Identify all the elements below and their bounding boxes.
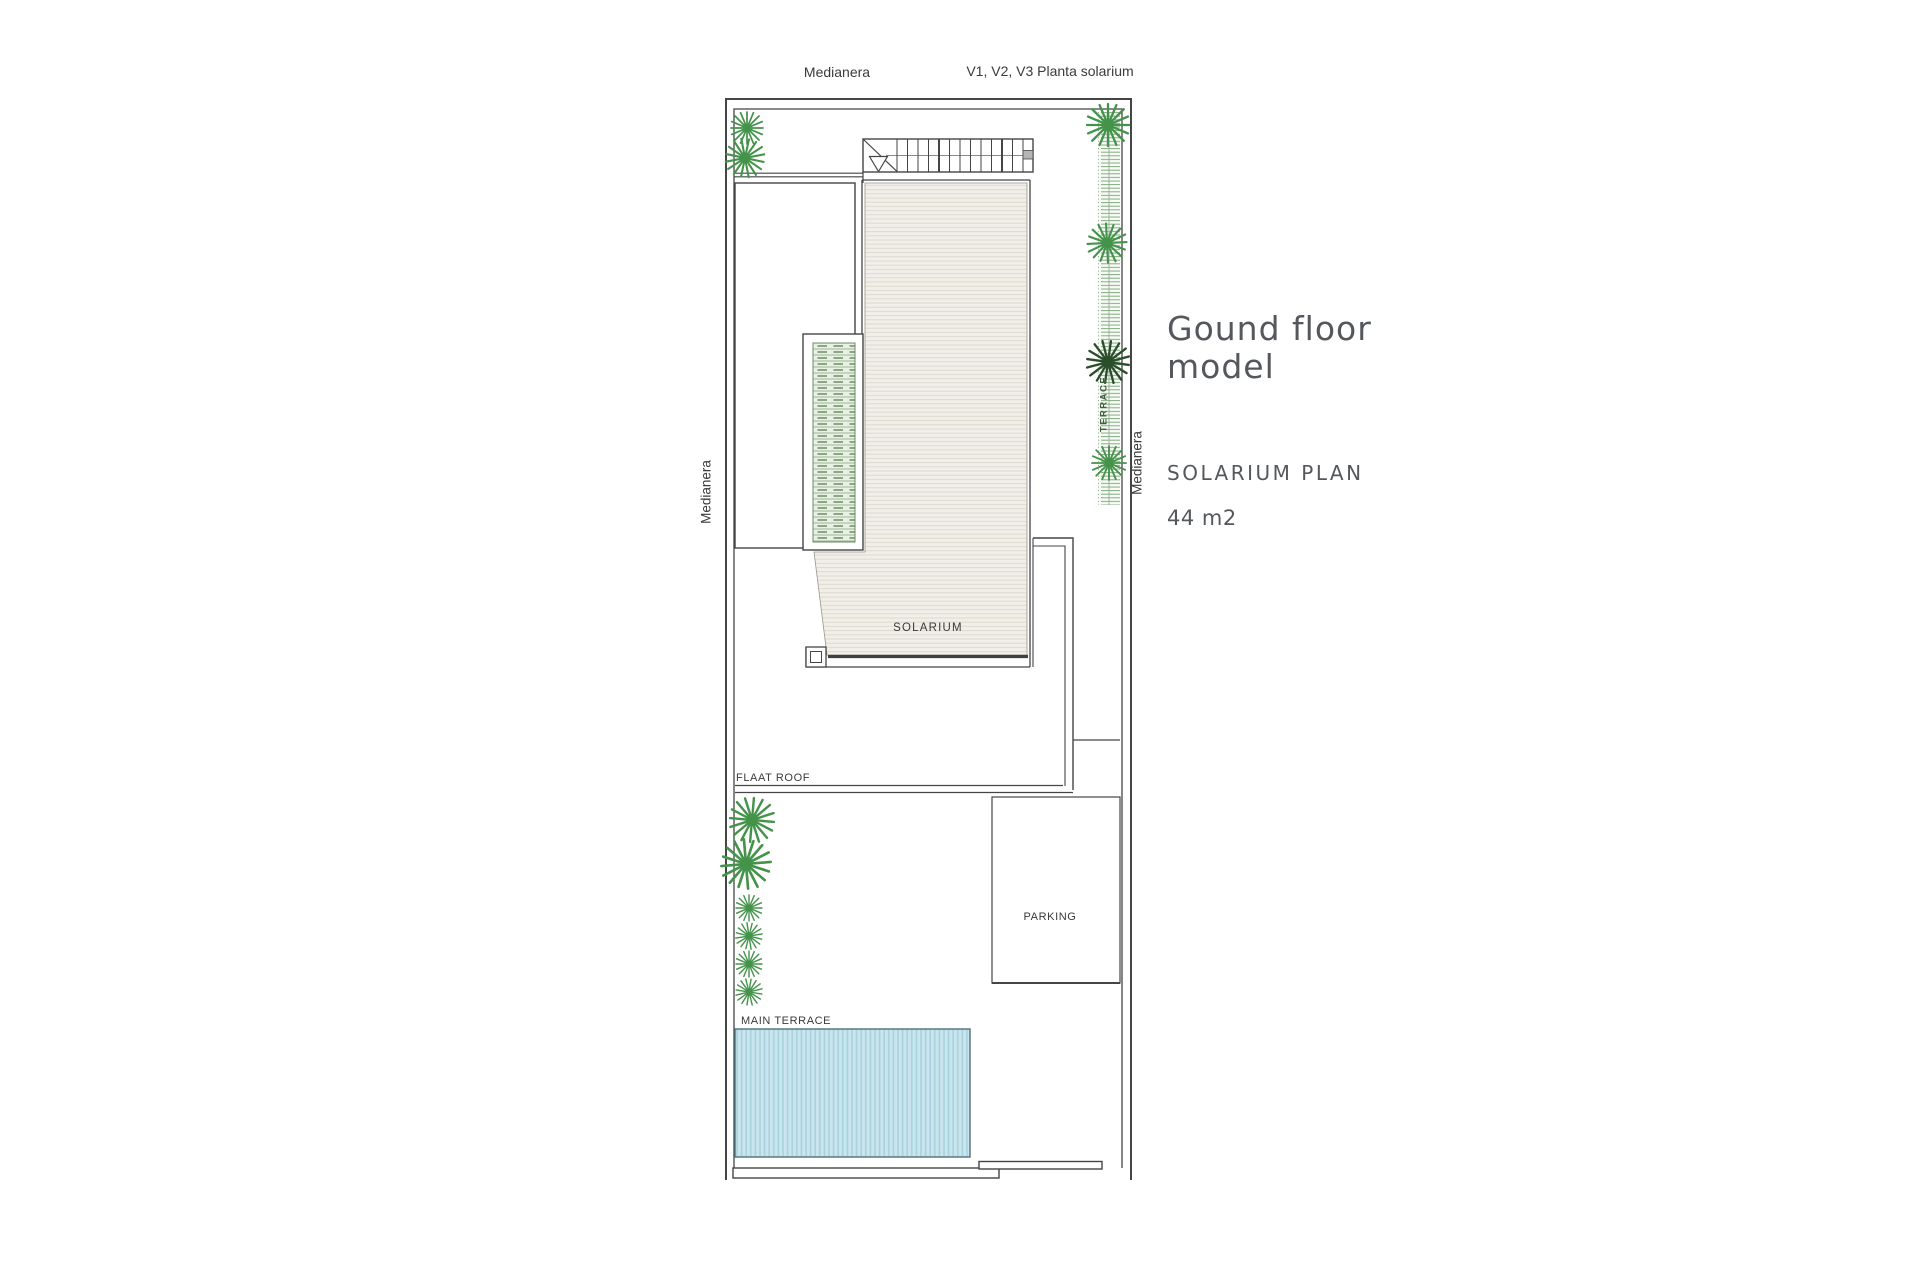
parking-outline: [992, 797, 1120, 983]
side-corridor-outline: [1033, 538, 1120, 790]
plan-name: SOLARIUM PLAN: [1167, 461, 1364, 485]
floor-plan-drawing: [0, 0, 1920, 1280]
plant-icon: [1087, 104, 1129, 146]
parking-label: PARKING: [1024, 911, 1077, 923]
plant-icon: [728, 796, 776, 844]
solarium-label: SOLARIUM: [893, 622, 963, 634]
terrace-label: TERRACE: [1099, 376, 1110, 432]
boundary-label-left: Medianera: [699, 460, 714, 524]
bottom-boundary: [733, 1162, 1102, 1179]
drawing-note: V1, V2, V3 Planta solarium: [966, 63, 1133, 79]
planter-strip: [803, 334, 863, 550]
plant-icon: [736, 895, 762, 921]
flat-roof-label: FLAAT ROOF: [736, 772, 810, 784]
column-post-inner: [811, 652, 822, 663]
stair-landing-mark: [1023, 151, 1033, 160]
floor-plan-page: Medianera V1, V2, V3 Planta solarium Med…: [0, 0, 1920, 1280]
plant-icon: [734, 977, 764, 1007]
top-corridor-edge: [734, 173, 863, 177]
stairs: [863, 139, 1033, 183]
main-terrace-label: MAIN TERRACE: [741, 1015, 831, 1027]
flat-roof-bottom-edge: [735, 786, 1073, 793]
pool: [735, 1029, 970, 1157]
plan-area-value: 44 m2: [1167, 506, 1237, 530]
plant-icon: [1092, 446, 1126, 480]
plant-icon: [716, 834, 776, 894]
page-title: Gound floor model: [1167, 310, 1377, 386]
plant-icon: [731, 112, 763, 144]
plant-icon: [1083, 219, 1132, 268]
plant-icon: [733, 920, 765, 952]
boundary-label-right: Medianera: [1130, 431, 1145, 495]
boundary-label-top: Medianera: [804, 64, 870, 80]
plant-icon: [736, 951, 762, 977]
